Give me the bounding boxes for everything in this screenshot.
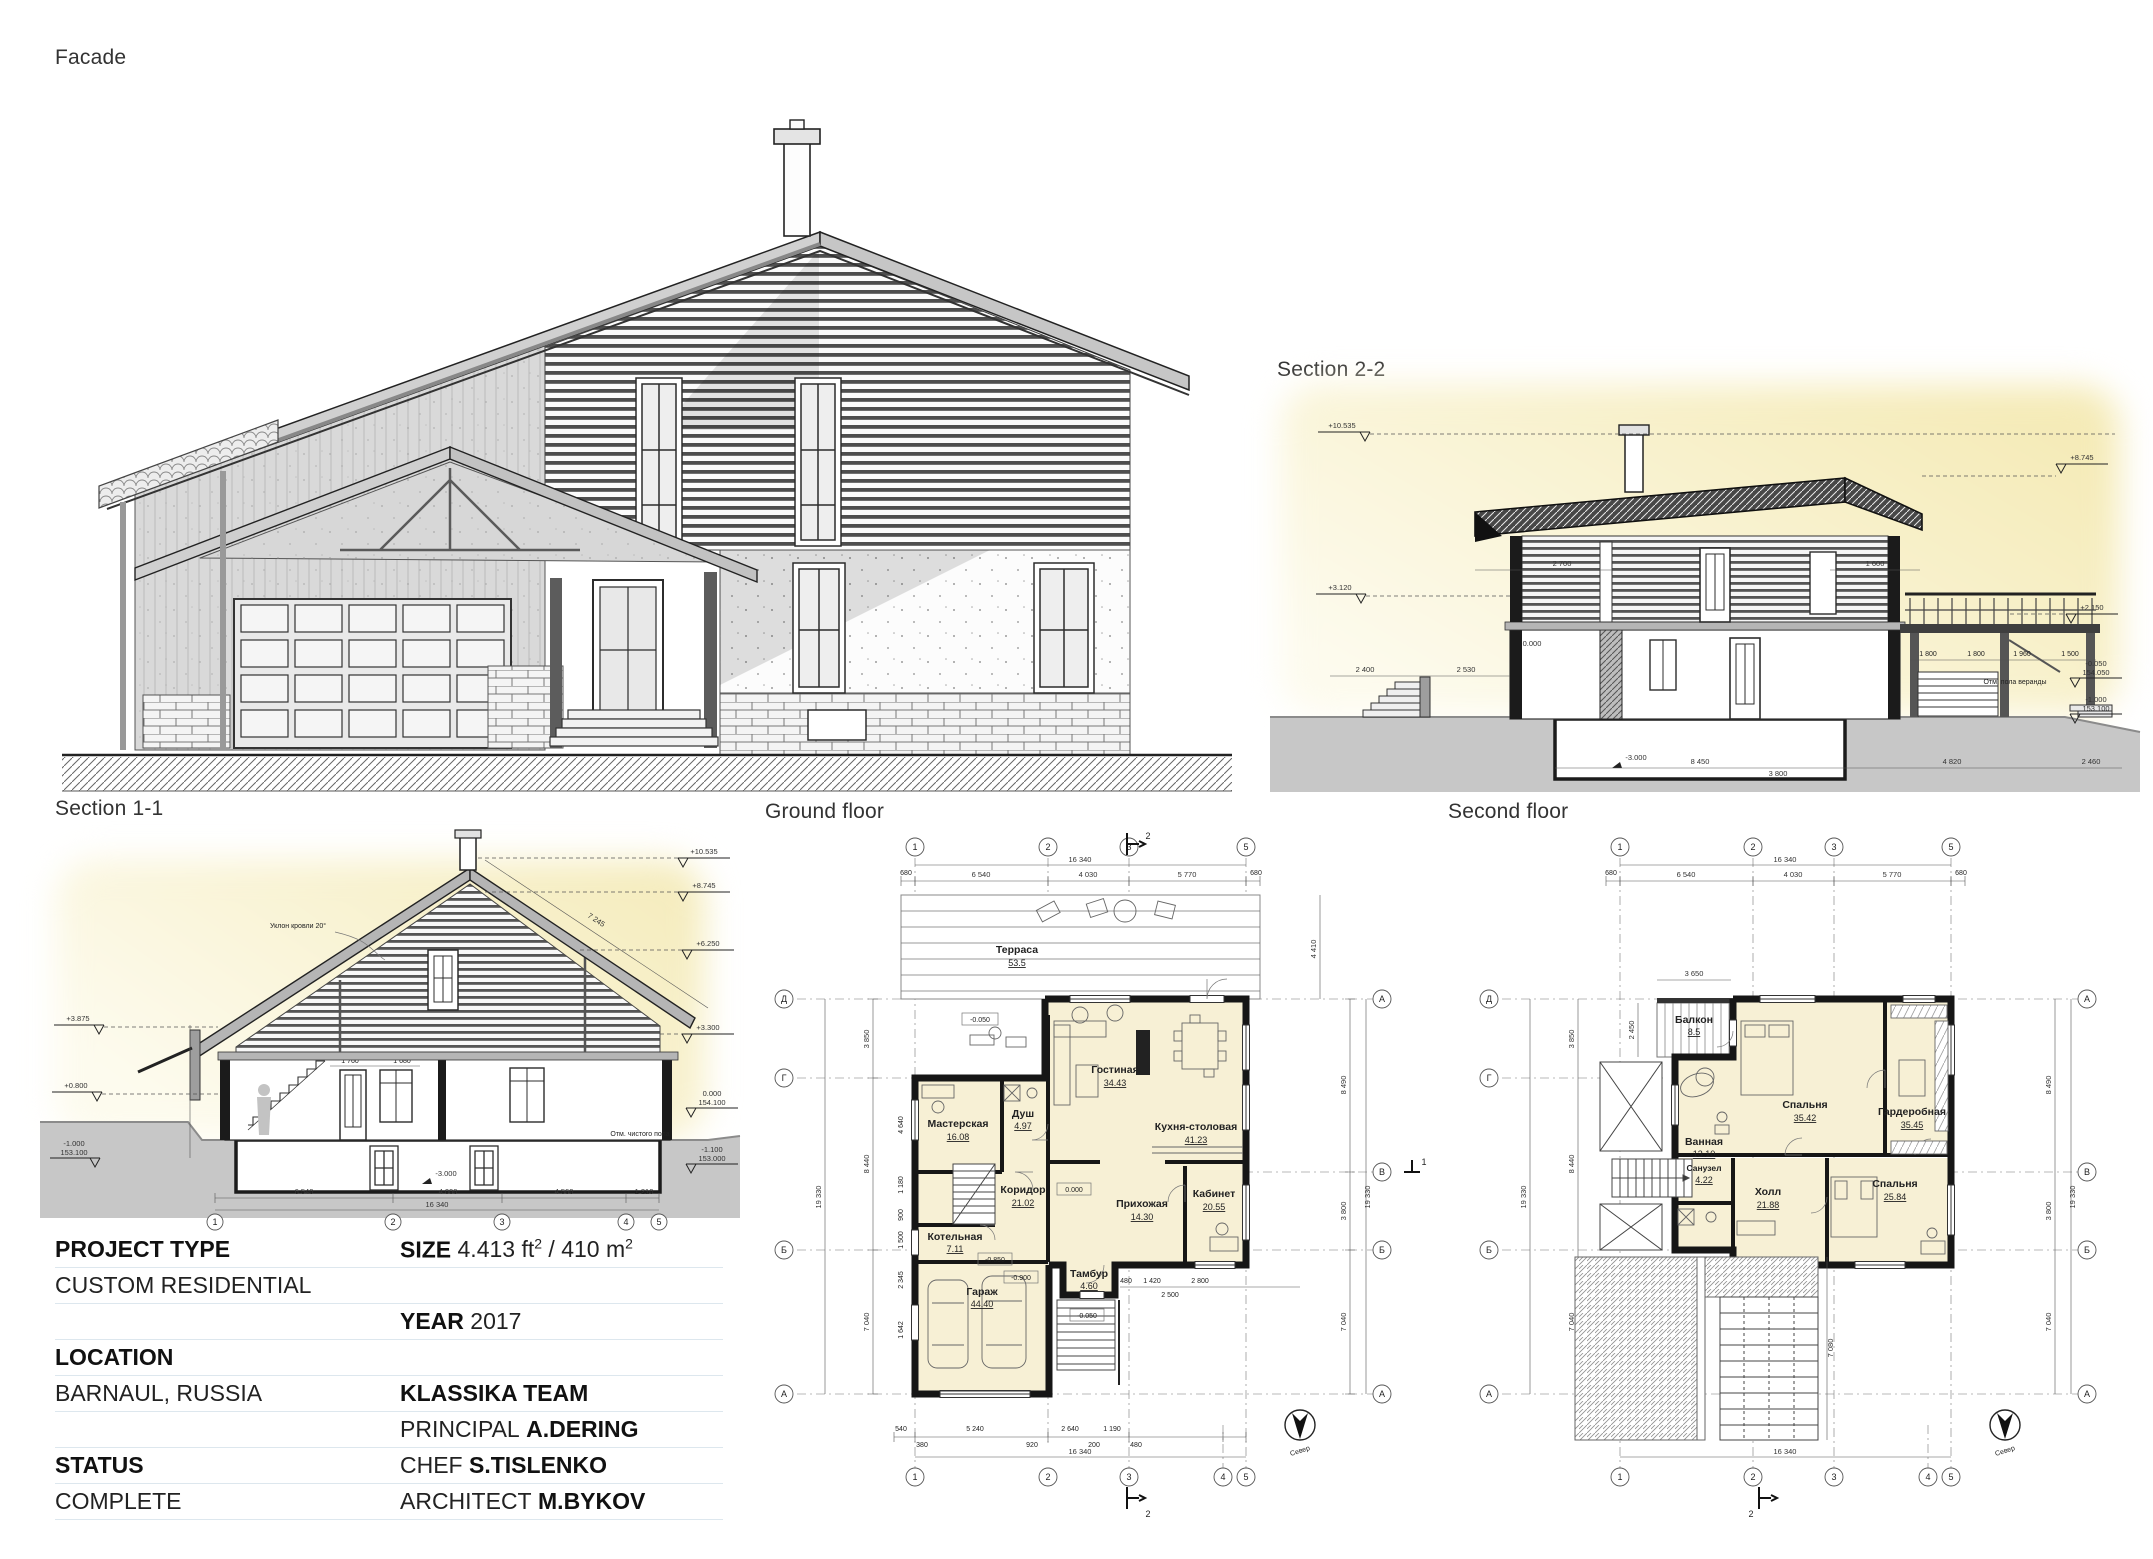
dim: 3 800 xyxy=(1769,769,1788,778)
dim: 380 xyxy=(916,1442,928,1449)
elev: -1.100 xyxy=(701,1145,722,1154)
drawing-sheet: Facade Section 2-2 Section 1-1 Ground fl… xyxy=(0,0,2153,1559)
room-label: Коридор xyxy=(1000,1184,1045,1196)
table-row: BARNAUL, RUSSIA KLASSIKA TEAM xyxy=(55,1376,723,1412)
roof-below: 7 080 xyxy=(1575,1257,1835,1440)
room-label: Балкон xyxy=(1675,1014,1713,1026)
elev-m0050: -0.050 xyxy=(2085,659,2106,668)
dim: 1 960 xyxy=(2013,651,2031,658)
dim: 1 800 xyxy=(1919,651,1937,658)
dim: 1 800 xyxy=(1967,651,1985,658)
north-arrow: Север xyxy=(1285,1410,1315,1458)
basement: -3.000 xyxy=(1555,719,1845,779)
table-row: PROJECT TYPE SIZE 4.413 ft2 / 410 m2 xyxy=(55,1232,723,1268)
grid-bubble: Б xyxy=(1486,1245,1492,1255)
grid-bubble: Б xyxy=(1379,1245,1385,1255)
room-label: Спальня xyxy=(1872,1178,1917,1190)
grid-bubble: А xyxy=(1379,1389,1385,1399)
elev-3120: +3.120 xyxy=(1328,583,1351,592)
chimney xyxy=(460,836,476,870)
level-zero: 0.000 xyxy=(1523,639,1542,648)
status-value: COMPLETE xyxy=(55,1488,400,1515)
level: -0.850 xyxy=(985,1257,1005,1264)
grid-bubble: А xyxy=(1379,994,1385,1004)
grid-bubble: 3 xyxy=(1126,1472,1131,1482)
inner-dims: 480 1 420 2 800 2 500 xyxy=(1120,1278,1300,1299)
room-label: Гостиная xyxy=(1091,1064,1138,1076)
room-area: 25.84 xyxy=(1884,1192,1907,1202)
grid-bubble: 5 xyxy=(1243,842,1248,852)
room-area: 34.43 xyxy=(1104,1078,1127,1088)
table-row: YEAR 2017 xyxy=(55,1304,723,1340)
room-label: Гардеробная xyxy=(1878,1106,1946,1118)
ground-floor-plan: 1 2 3 5 16 340 680 6 540 4 030 5 770 680… xyxy=(770,825,1440,1530)
room-label: Холл xyxy=(1755,1186,1781,1198)
dim: 6 540 xyxy=(972,870,991,879)
dim: 480 xyxy=(1130,1442,1142,1449)
level: 0.000 xyxy=(1065,1187,1083,1194)
grid-bottom: 540 380 5 240 920 2 640 200 1 190 480 16… xyxy=(894,1426,1255,1486)
room-label: Кабинет xyxy=(1193,1188,1236,1200)
section-1-1-drawing: -3.000 1 760 580 1 680 xyxy=(40,800,740,1230)
dim: 900 xyxy=(898,1209,905,1221)
room-area: 13.10 xyxy=(1693,1149,1716,1159)
dim: 2 800 xyxy=(1191,1278,1209,1285)
grid-bubble: В xyxy=(2084,1167,2090,1177)
dim: 7 040 xyxy=(1339,1313,1348,1332)
dim: 2 700 xyxy=(1553,559,1572,568)
grid-bubble: Г xyxy=(782,1073,787,1083)
grid-bubble: 5 xyxy=(1948,842,1953,852)
table-row: STATUS CHEF S.TISLENKO xyxy=(55,1448,723,1484)
dim: 680 xyxy=(1250,870,1262,877)
porch-post-left xyxy=(550,578,562,748)
dim: 2 345 xyxy=(898,1271,905,1289)
dim: 1 210 xyxy=(635,1187,654,1196)
dim: 2 400 xyxy=(1356,665,1375,674)
second-floor-title: Second floor xyxy=(1448,800,1568,824)
dim: 8 490 xyxy=(2044,1076,2053,1095)
principal-label: PRINCIPAL xyxy=(400,1416,520,1442)
room-area: 4.60 xyxy=(1080,1281,1098,1291)
fireplace-stack xyxy=(1600,630,1622,719)
pergola xyxy=(1720,1297,1818,1440)
dim: 5 770 xyxy=(1178,870,1197,879)
room-area: 20.55 xyxy=(1203,1202,1226,1212)
dim: 7 040 xyxy=(862,1313,871,1332)
roof xyxy=(1475,425,1922,542)
grid-bottom: 16 340 1 2 3 4 5 2 xyxy=(1611,1447,1960,1519)
grid-bubble: Д xyxy=(1486,994,1492,1004)
dim: 1 642 xyxy=(898,1321,905,1339)
grid-bubble: 4 xyxy=(1220,1472,1225,1482)
north-label: Север xyxy=(1289,1445,1311,1458)
dim: 7 040 xyxy=(2044,1313,2053,1332)
porch-steps xyxy=(550,710,718,746)
dim: 2 530 xyxy=(1457,665,1476,674)
dim: 680 xyxy=(1605,870,1617,877)
team-name: KLASSIKA TEAM xyxy=(400,1380,723,1407)
second-floor-plan: 1 2 3 5 16 340 680 6 540 4 030 5 770 680… xyxy=(1475,825,2145,1530)
grid-bubble: 3 xyxy=(1831,1472,1836,1482)
dim-total: 16 340 xyxy=(1069,1447,1092,1456)
room-label: Санузел xyxy=(1687,1163,1722,1173)
cut-label: 2 xyxy=(1145,1509,1150,1519)
facade-title: Facade xyxy=(55,46,126,70)
dim: 8 450 xyxy=(1691,757,1710,766)
grid-bubble: Д xyxy=(781,994,787,1004)
grid-bubble: 1 xyxy=(1617,842,1622,852)
dim: 1 600 xyxy=(1866,559,1885,568)
dim: 2 450 xyxy=(1627,1021,1636,1040)
elev-2150: +2.150 xyxy=(2080,603,2103,612)
level: -0.050 xyxy=(1077,1313,1097,1320)
roof-dim: 7 245 xyxy=(586,911,607,929)
dim: 920 xyxy=(1026,1442,1038,1449)
dim: 3 850 xyxy=(1567,1030,1576,1049)
elev: 154.100 xyxy=(698,1098,725,1107)
room-area: 44.40 xyxy=(971,1299,994,1309)
dim-total: 19 330 xyxy=(814,1186,823,1209)
level: -0.900 xyxy=(1011,1275,1031,1282)
dim: 4 000 xyxy=(439,1187,458,1196)
room-area: 35.45 xyxy=(1901,1120,1924,1130)
dim-total: 19 330 xyxy=(1519,1186,1528,1209)
grid-bubble: 1 xyxy=(912,1472,917,1482)
dim: 6 540 xyxy=(295,1187,314,1196)
elev: 153.100 xyxy=(60,1148,87,1157)
grid-bubble: Г xyxy=(1487,1073,1492,1083)
lower-window-left xyxy=(793,563,845,693)
dim-total: 16 340 xyxy=(1774,1447,1797,1456)
dim: 4 640 xyxy=(898,1116,905,1134)
dim: 540 xyxy=(895,1426,907,1433)
upper-window-left xyxy=(636,378,682,546)
grid-bubble: 4 xyxy=(1925,1472,1930,1482)
table-row: CUSTOM RESIDENTIAL xyxy=(55,1268,723,1304)
dim: 4 410 xyxy=(1309,940,1318,959)
room-area: 21.88 xyxy=(1757,1200,1780,1210)
cut-label: 2 xyxy=(1748,1509,1753,1519)
dim: 8 440 xyxy=(862,1155,871,1174)
room-area: 53.5 xyxy=(1008,958,1026,968)
dim-total: 19 330 xyxy=(1363,1186,1372,1209)
dim: 1 180 xyxy=(898,1176,905,1194)
veranda-note: Отм. пола веранды xyxy=(1983,679,2046,686)
basement-window xyxy=(808,710,866,740)
room-label: Тамбур xyxy=(1070,1268,1108,1280)
room-area: 35.42 xyxy=(1794,1113,1817,1123)
architect-label: ARCHITECT xyxy=(400,1488,532,1514)
project-info-table: PROJECT TYPE SIZE 4.413 ft2 / 410 m2 CUS… xyxy=(55,1232,723,1520)
dim: 7 080 xyxy=(1826,1339,1835,1358)
grid-bubble: 3 xyxy=(1831,842,1836,852)
grid-bubble: Б xyxy=(781,1245,787,1255)
terrace: Терраса 53.5 xyxy=(901,895,1260,999)
grid-bubble: А xyxy=(2084,994,2090,1004)
elev: +3.875 xyxy=(66,1014,89,1023)
basement: -3.000 xyxy=(236,1140,660,1192)
elev: +6.250 xyxy=(696,939,719,948)
room-area: 4.97 xyxy=(1014,1121,1032,1131)
exterior-stairs xyxy=(1363,677,1430,717)
dim: 3 800 xyxy=(2044,1202,2053,1221)
room-label: Котельная xyxy=(928,1231,983,1243)
dim-total: 16 340 xyxy=(1774,855,1797,864)
elev-8745: +8.745 xyxy=(2070,453,2093,462)
dim: 1 500 xyxy=(2061,651,2079,658)
grid-bubble: В xyxy=(1379,1167,1385,1177)
left-inner-dims: 4 640 1 180 900 1 500 2 345 1 642 xyxy=(898,1116,905,1339)
table-row: COMPLETE ARCHITECT M.BYKOV xyxy=(55,1484,723,1520)
dim: 3 800 xyxy=(1339,1202,1348,1221)
chef-name: S.TISLENKO xyxy=(469,1452,607,1478)
project-type-label: PROJECT TYPE xyxy=(55,1236,400,1263)
room-label: Гараж xyxy=(966,1286,998,1298)
north-arrow: Север xyxy=(1990,1410,2020,1458)
ground-floor-title: Ground floor xyxy=(765,800,884,824)
basement-level: -3.000 xyxy=(435,1169,456,1178)
status-label: STATUS xyxy=(55,1452,400,1479)
architect-name: M.BYKOV xyxy=(538,1488,645,1514)
grid-bubble: 4 xyxy=(623,1217,628,1227)
dim: 4 820 xyxy=(1943,757,1962,766)
facade-entrance xyxy=(550,572,718,748)
room-area: 7.11 xyxy=(947,1244,964,1254)
grid-bubble: 1 xyxy=(212,1217,217,1227)
elev-153100: 153.100 xyxy=(2082,704,2109,713)
window xyxy=(1810,552,1836,614)
grid-bubble: А xyxy=(781,1389,787,1399)
dim: 3 850 xyxy=(862,1030,871,1049)
roof-slope-note: Уклон кровли 20° xyxy=(270,922,326,930)
upper-floor xyxy=(1510,536,1900,622)
north-label: Север xyxy=(1994,1445,2016,1458)
floor-note: Отм. чистого пола xyxy=(610,1131,669,1138)
cut-label: 1 xyxy=(1421,1157,1426,1167)
section-2-2-drawing: -3.000 xyxy=(1270,372,2140,792)
facade-ground xyxy=(62,755,1232,791)
grid-bubble: 2 xyxy=(1045,1472,1050,1482)
room-area: 21.02 xyxy=(1012,1198,1035,1208)
facade-garage-door xyxy=(234,599,511,748)
room-label: Кухня-столовая xyxy=(1155,1121,1237,1133)
elev: +8.745 xyxy=(692,881,715,890)
elev: +0.800 xyxy=(64,1081,87,1090)
room-label: Прихожая xyxy=(1116,1198,1168,1210)
size-value: 4.413 ft2 / 410 m2 xyxy=(458,1236,633,1262)
room-area: 4.22 xyxy=(1695,1175,1713,1185)
elev: -1.000 xyxy=(63,1139,84,1148)
grid-bubble: Б xyxy=(2084,1245,2090,1255)
dim: 5 770 xyxy=(1883,870,1902,879)
dim: 6 540 xyxy=(1677,870,1696,879)
dim: 680 xyxy=(900,870,912,877)
elev-10535: +10.535 xyxy=(1328,421,1355,430)
room-label: Мастерская xyxy=(927,1118,988,1130)
upper-window-right xyxy=(795,378,841,546)
dim: 2 640 xyxy=(1061,1426,1079,1433)
floor-slab xyxy=(1505,622,1905,630)
elev-m1000: -1.000 xyxy=(2085,695,2106,704)
level: -0.050 xyxy=(970,1017,990,1024)
dim-total: 16 340 xyxy=(1069,855,1092,864)
dim: 680 xyxy=(1955,870,1967,877)
basement-door xyxy=(370,1146,398,1190)
grid-bubble: 1 xyxy=(912,842,917,852)
dim-total: 16 340 xyxy=(426,1200,449,1209)
location-value: BARNAUL, RUSSIA xyxy=(55,1380,400,1407)
basement-door xyxy=(470,1146,498,1190)
dim: 8 490 xyxy=(1339,1076,1348,1095)
grid-bubble: 5 xyxy=(1948,1472,1953,1482)
room-label: Спальня xyxy=(1782,1099,1827,1111)
elev-154050: 154.050 xyxy=(2082,668,2109,677)
dim: 5 240 xyxy=(966,1426,984,1433)
grid-bubble: 5 xyxy=(656,1217,661,1227)
dim: 1 500 xyxy=(898,1231,905,1249)
cut-label: 2 xyxy=(1145,831,1150,841)
dim: 1 190 xyxy=(1103,1426,1121,1433)
lower-floor xyxy=(1510,630,1900,719)
year-label: YEAR xyxy=(400,1308,464,1334)
room-area: 16.08 xyxy=(947,1132,970,1142)
person-silhouette xyxy=(257,1084,271,1135)
elev: +3.300 xyxy=(696,1023,719,1032)
grid-bubble: 3 xyxy=(499,1217,504,1227)
room-area: 14.30 xyxy=(1131,1212,1154,1222)
grid-bubble: 2 xyxy=(1750,842,1755,852)
grid-bubble: 1 xyxy=(1617,1472,1622,1482)
elev: 0.000 xyxy=(703,1089,722,1098)
table-row: LOCATION xyxy=(55,1340,723,1376)
facade-chimney xyxy=(774,120,820,236)
grid-bubble: А xyxy=(2084,1389,2090,1399)
room-label: Ванная xyxy=(1685,1136,1723,1148)
facade-drawing xyxy=(40,110,1250,800)
room-label-terrace: Терраса xyxy=(996,944,1038,956)
leanto-post xyxy=(220,471,226,750)
chimney xyxy=(1625,434,1643,492)
principal-name: A.DERING xyxy=(526,1416,638,1442)
ground-floor-level: 1 760 580 1 680 xyxy=(220,1052,672,1140)
balcony: Балкон 8.5 3 650 2 450 xyxy=(1627,969,1733,1057)
room-area: 41.23 xyxy=(1185,1135,1208,1145)
lower-window-right xyxy=(1034,563,1094,693)
location-label: LOCATION xyxy=(55,1344,400,1371)
dim: 480 xyxy=(1120,1278,1132,1285)
project-type-value: CUSTOM RESIDENTIAL xyxy=(55,1272,400,1299)
dim: 1 420 xyxy=(1143,1278,1161,1285)
dim: 2 500 xyxy=(1161,1292,1179,1299)
table-row: PRINCIPAL A.DERING xyxy=(55,1412,723,1448)
dim: 8 440 xyxy=(1567,1155,1576,1174)
dim: 3 650 xyxy=(1685,969,1704,978)
floor-slab xyxy=(218,1052,678,1060)
elev: 153.000 xyxy=(698,1154,725,1163)
grid-bubble: 2 xyxy=(1750,1472,1755,1482)
leanto-post xyxy=(120,502,126,750)
grid-bubble: А xyxy=(1486,1389,1492,1399)
grid-bubble: 2 xyxy=(390,1217,395,1227)
chef-label: CHEF xyxy=(400,1452,463,1478)
basement-level: -3.000 xyxy=(1625,753,1646,762)
dim: 4 030 xyxy=(1079,870,1098,879)
room-area: 8.5 xyxy=(1688,1027,1701,1037)
grid-bubble: 2 xyxy=(1045,842,1050,852)
dim: 4 560 xyxy=(555,1187,574,1196)
room-label: Душ xyxy=(1012,1108,1034,1120)
dim: 4 030 xyxy=(1784,870,1803,879)
elev: +10.535 xyxy=(690,847,717,856)
dim: 2 460 xyxy=(2082,757,2101,766)
grid-bubble: 5 xyxy=(1243,1472,1248,1482)
year-value: 2017 xyxy=(470,1308,521,1334)
size-label: SIZE xyxy=(400,1236,451,1262)
dim-total: 19 330 xyxy=(2068,1186,2077,1209)
